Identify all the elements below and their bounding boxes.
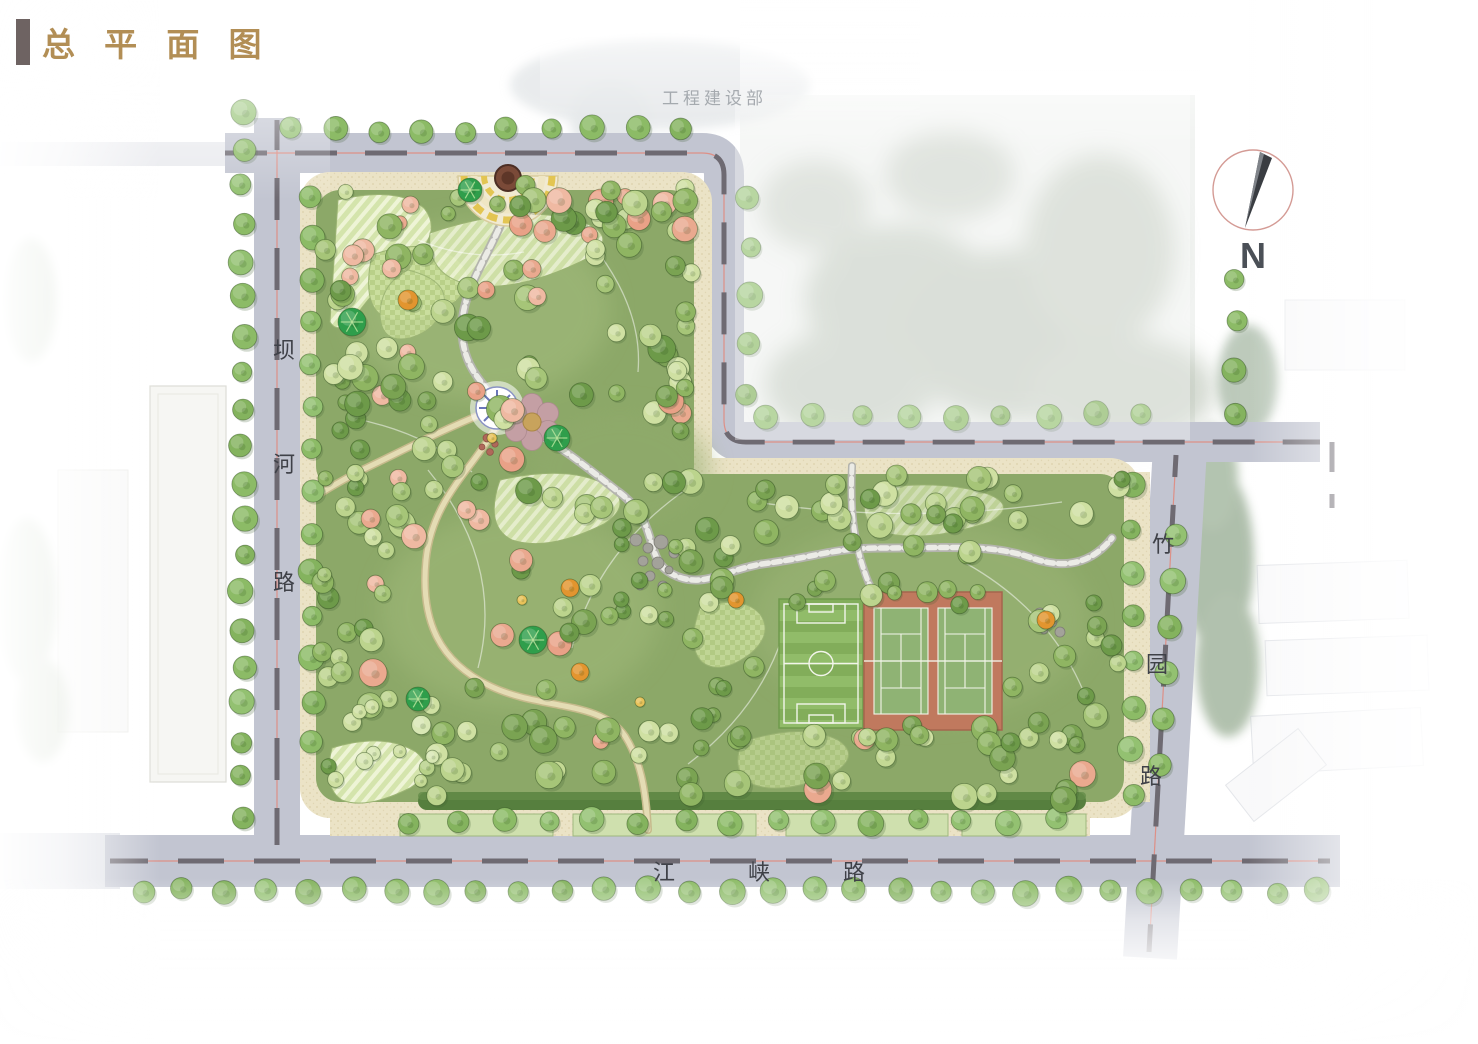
svg-text:路: 路 <box>843 860 865 885</box>
svg-text:坝: 坝 <box>273 338 295 363</box>
svg-text:路: 路 <box>273 570 295 595</box>
tennis-courts <box>864 592 1002 730</box>
soccer-field <box>779 599 863 728</box>
title-accent-bar <box>16 19 30 65</box>
svg-text:江: 江 <box>653 860 675 885</box>
svg-text:竹: 竹 <box>1152 532 1174 557</box>
svg-text:路: 路 <box>1140 764 1162 789</box>
site-plan-map: 工程建设部 坝 河 路 竹 园 路 江 峡 路 N <box>0 0 1478 1044</box>
page-header: 总 平 面 图 <box>16 18 272 66</box>
top-building-label: 工程建设部 <box>662 89 767 108</box>
svg-text:峡: 峡 <box>748 860 770 885</box>
page-title: 总 平 面 图 <box>42 18 272 66</box>
svg-text:河: 河 <box>273 452 295 477</box>
svg-text:园: 园 <box>1146 652 1168 677</box>
master-plan-page: 总 平 面 图 <box>0 0 1478 1044</box>
north-label: N <box>1240 235 1266 276</box>
